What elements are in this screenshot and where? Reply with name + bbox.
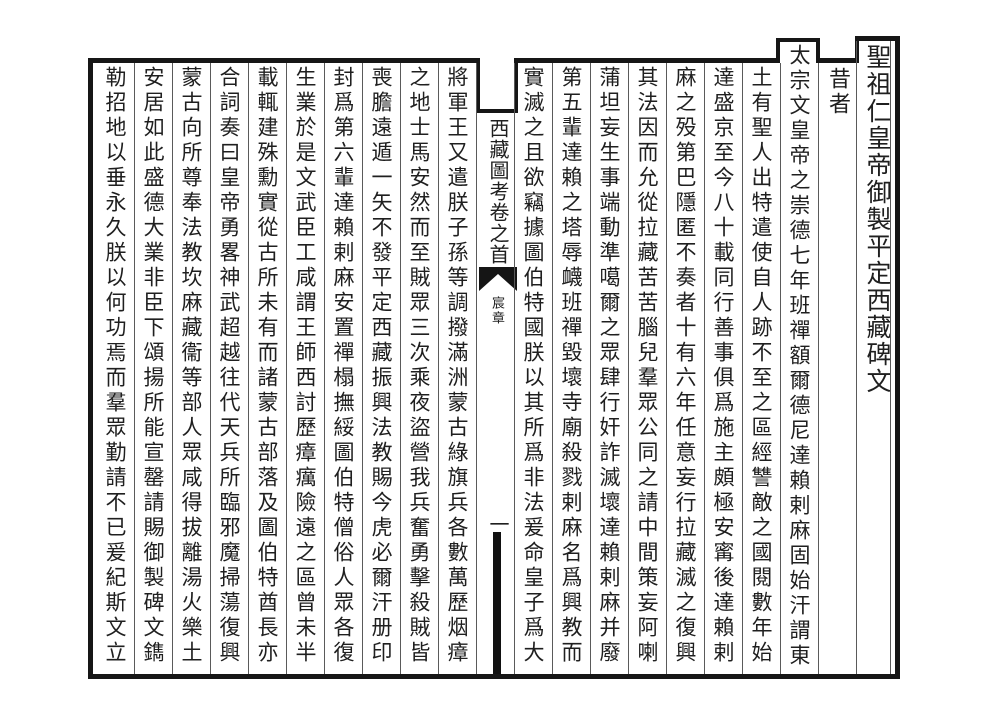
book-title: 西藏圖考卷之首 bbox=[478, 118, 516, 265]
heading-box-top bbox=[855, 36, 900, 41]
column-rule bbox=[818, 63, 819, 674]
column-rule bbox=[248, 63, 249, 674]
book-page: 聖祖仁皇帝御製平定西藏碑文 昔者 太宗文皇帝之崇德七年班禪額爾德尼達賴剌麻固始汗… bbox=[0, 0, 1000, 706]
column-rule bbox=[742, 63, 743, 674]
text-column: 實滅之且欲竊據圖伯特國朕以其所爲非法爰命皇子爲大 bbox=[514, 66, 552, 666]
text-column: 其法因而允從拉藏苦苦腦兒羣眾公同之請中間策妄阿喇 bbox=[628, 66, 666, 666]
text-column: 土有聖人出特遣使自人跡不至之區經讐敵之國閱數年始 bbox=[742, 66, 780, 666]
text-column: 蒙古向所尊奉法教坎麻藏衞等部人眾咸得拔離湯火樂土 bbox=[172, 66, 210, 666]
frame-top-border-b bbox=[518, 58, 777, 63]
text-column: 載輒建殊勳實從古所未有而諸蒙古部落及圖伯特酋長亦 bbox=[248, 66, 286, 666]
column-rule bbox=[400, 63, 401, 674]
text-column: 蒲坦妄生事端動準噶爾之眾肆行奸詐滅壞達賴剌麻并廢 bbox=[590, 66, 628, 666]
center-dip-bottom bbox=[476, 109, 518, 113]
text-column: 達盛京至今八十載同行善事俱爲施主頗極安寗後達賴剌 bbox=[704, 66, 742, 666]
column-rule bbox=[514, 63, 515, 674]
column-rule bbox=[210, 63, 211, 674]
column-rule bbox=[324, 63, 325, 674]
frame-right-border bbox=[895, 36, 900, 679]
section-label: 宸章 bbox=[478, 296, 516, 326]
column-rule bbox=[438, 63, 439, 674]
column-rule bbox=[362, 63, 363, 674]
text-column: 安居如此盛德大業非臣下頌揚所能宣罄請賜御製碑文鐫 bbox=[134, 66, 172, 666]
column-rule bbox=[666, 63, 667, 674]
column-rule bbox=[286, 63, 287, 674]
column-rule bbox=[172, 63, 173, 674]
text-column: 合詞奏曰皇帝勇畧神武超越往代天兵所臨邪魔掃蕩復興 bbox=[210, 66, 248, 666]
column-rule bbox=[856, 41, 857, 674]
column-rule bbox=[476, 63, 477, 674]
frame-left-border bbox=[88, 58, 93, 679]
text-column: 勒招地以垂永久朕以何功焉而羣眾勤請不已爰紀斯文立 bbox=[96, 66, 134, 666]
opening-column: 昔者 bbox=[819, 67, 857, 117]
column-rule bbox=[704, 63, 705, 674]
column-rule bbox=[552, 63, 553, 674]
column-rule bbox=[134, 63, 135, 674]
fishtail-icon bbox=[479, 267, 517, 293]
text-column: 生業於是文武臣工咸謂王師西討歷瘴癘險遠之區曾未半 bbox=[286, 66, 324, 666]
column-rule bbox=[890, 41, 891, 674]
text-column: 太宗文皇帝之崇德七年班禪額爾德尼達賴剌麻固始汗謂東 bbox=[780, 44, 818, 669]
text-column: 封爲第六輩達賴剌麻安置禪榻撫綏圖伯特僧俗人眾各復 bbox=[324, 66, 362, 666]
frame-top-border-c bbox=[820, 58, 856, 63]
frame-bottom-border bbox=[88, 674, 900, 679]
text-column: 麻之殁第巴隱匿不奏者十有六年任意妄行拉藏滅之復興 bbox=[666, 66, 704, 666]
text-column: 之地士馬安然而至賊眾三次乘夜盜營我兵奮勇擊殺賊皆 bbox=[400, 66, 438, 666]
text-column: 將軍王又遣朕子孫等調撥滿洲蒙古綠旗兵各數萬歷烟瘴 bbox=[438, 66, 476, 666]
text-column: 第五輩達賴之塔辱衊班禪毀壞寺廟殺戮剌麻名爲興教而 bbox=[552, 66, 590, 666]
center-fold-bar bbox=[493, 532, 501, 674]
notch-top bbox=[776, 38, 820, 42]
column-rule bbox=[780, 63, 781, 674]
frame-top-border-a bbox=[88, 58, 476, 63]
column-rule bbox=[628, 63, 629, 674]
column-rule bbox=[590, 63, 591, 674]
text-column: 喪膽遠遁一矢不發平定西藏振興法教賜今虎必爾汗册印 bbox=[362, 66, 400, 666]
